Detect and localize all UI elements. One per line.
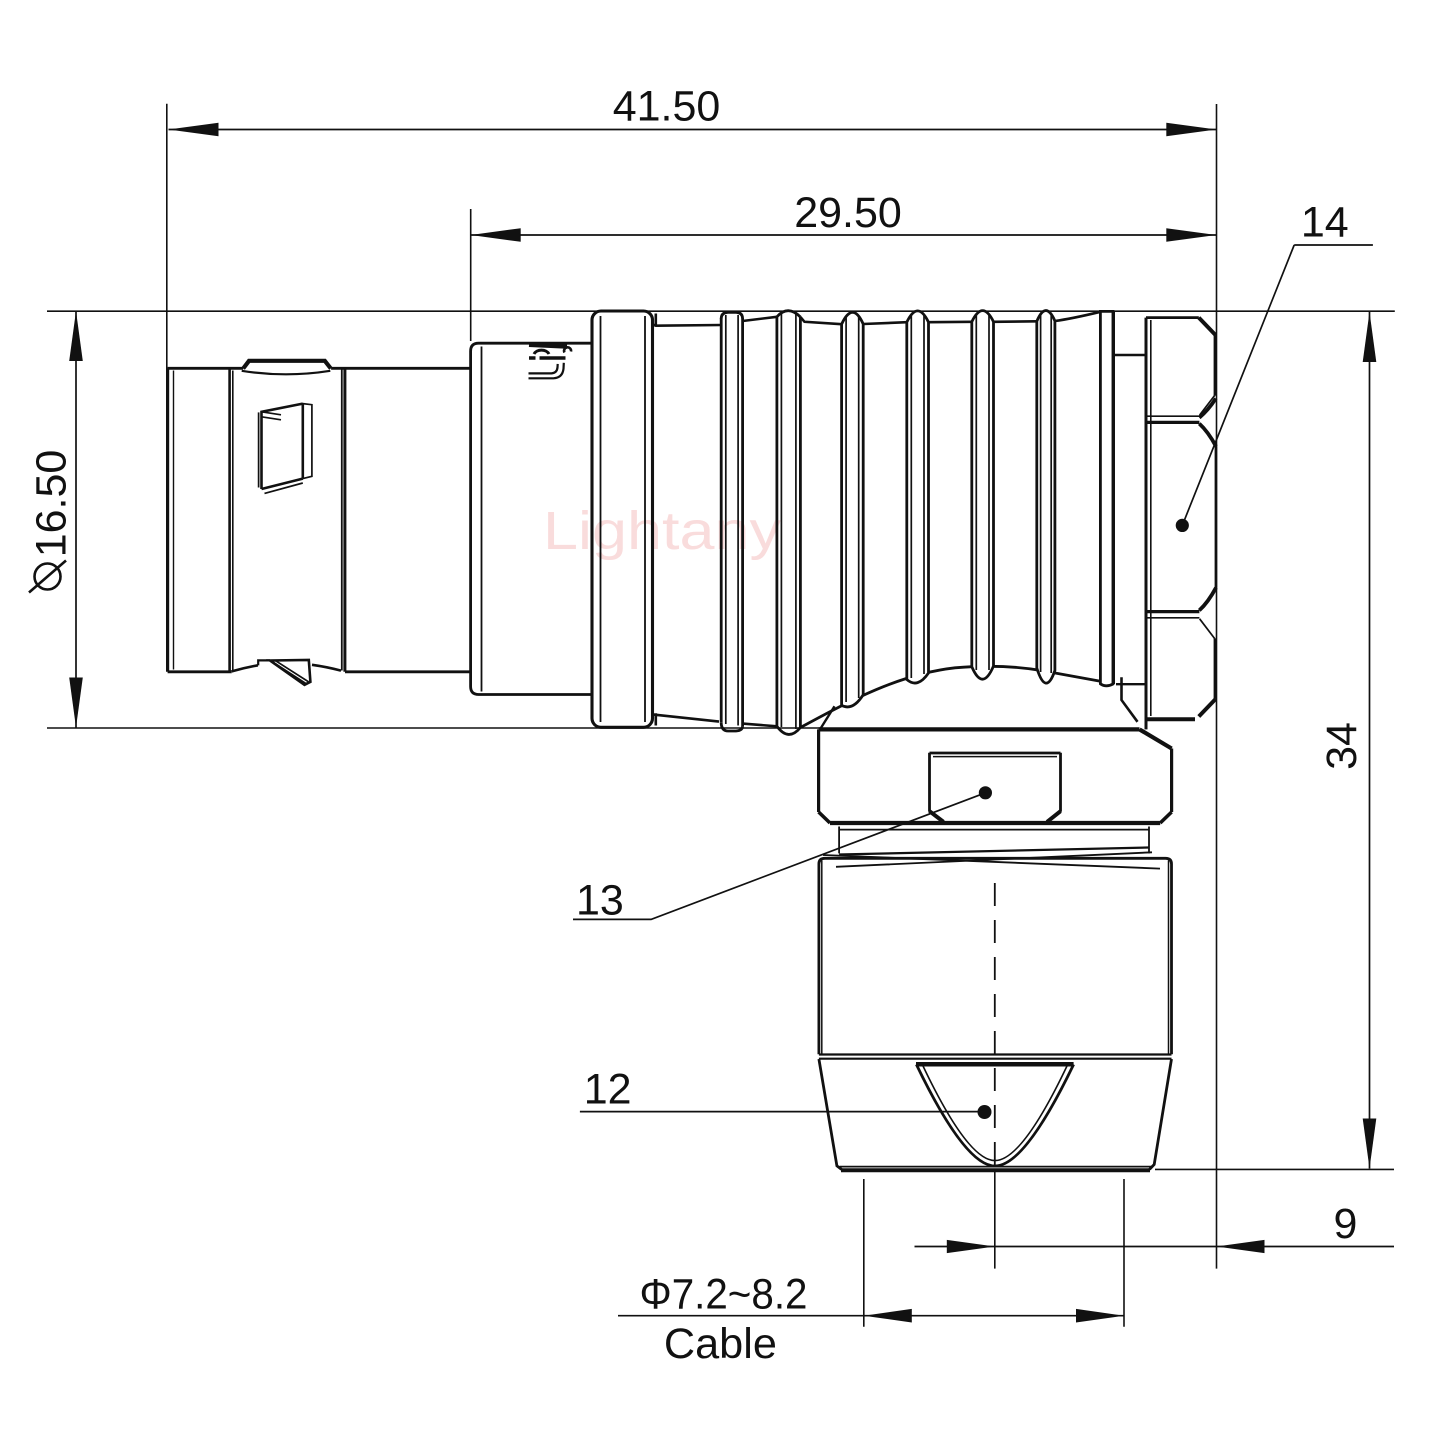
svg-text:16.50: 16.50 <box>28 450 76 558</box>
svg-text:Φ7.2~8.2: Φ7.2~8.2 <box>640 1270 808 1318</box>
svg-text:Cable: Cable <box>664 1320 777 1368</box>
svg-text:13: 13 <box>576 876 624 924</box>
svg-text:9: 9 <box>1334 1200 1358 1248</box>
svg-text:34: 34 <box>1318 722 1366 770</box>
svg-text:41.50: 41.50 <box>613 83 721 131</box>
svg-text:14: 14 <box>1301 198 1349 246</box>
svg-text:12: 12 <box>584 1066 632 1114</box>
svg-text:Lightany: Lightany <box>543 501 781 561</box>
svg-text:29.50: 29.50 <box>794 189 902 237</box>
